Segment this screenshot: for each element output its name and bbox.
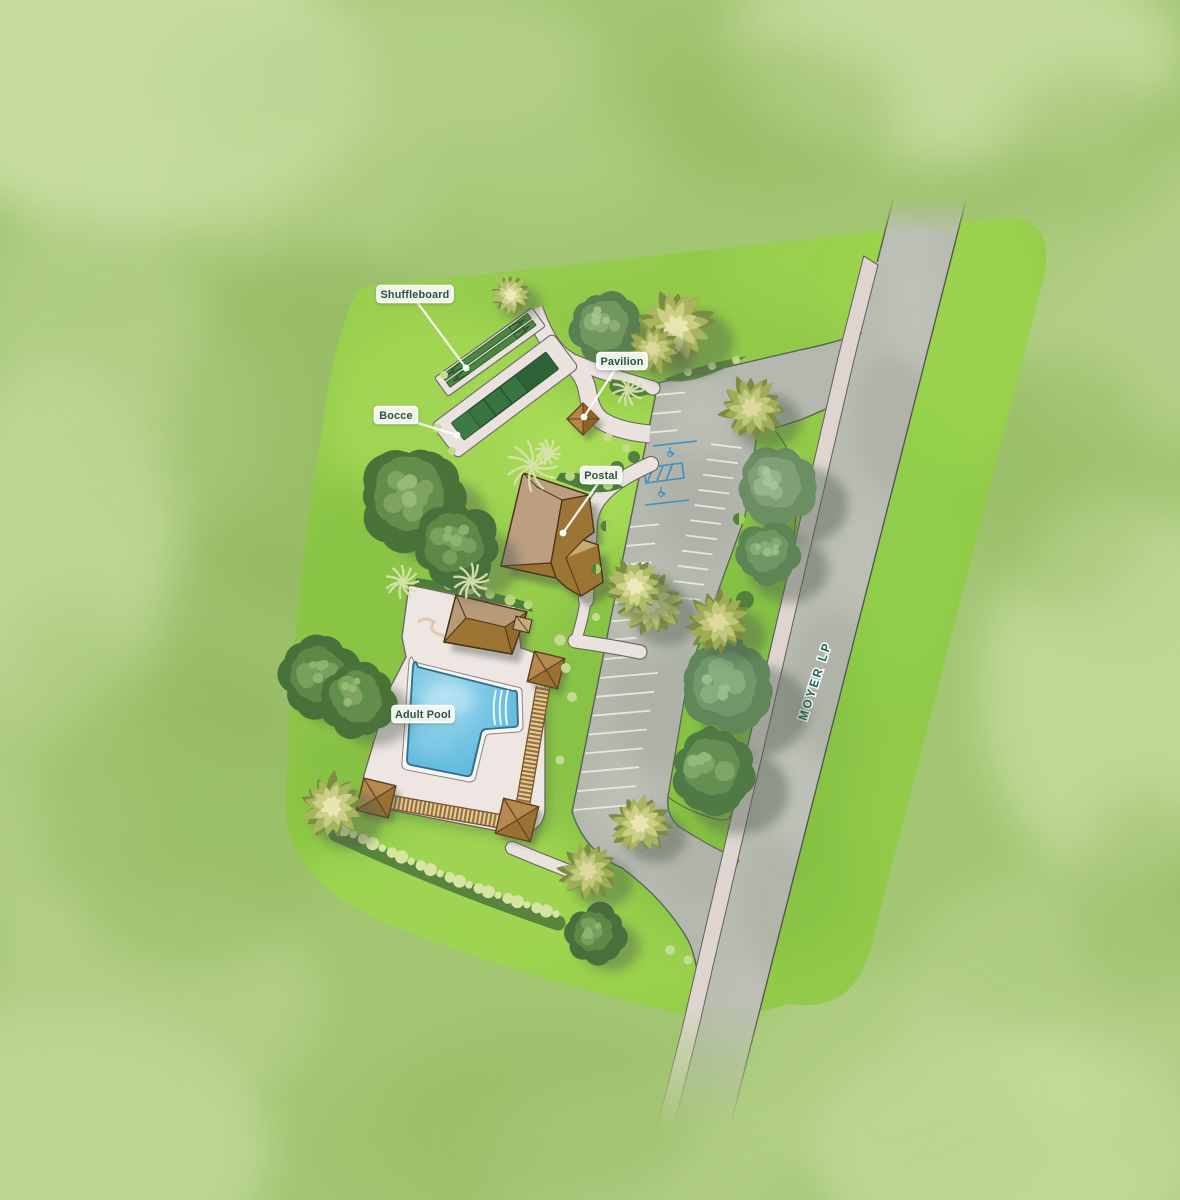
svg-text:Postal: Postal — [584, 470, 618, 482]
svg-text:Shuffleboard: Shuffleboard — [381, 289, 450, 301]
svg-text:Bocce: Bocce — [379, 410, 412, 422]
svg-text:Pavilion: Pavilion — [600, 356, 643, 368]
svg-text:Adult Pool: Adult Pool — [395, 709, 451, 721]
